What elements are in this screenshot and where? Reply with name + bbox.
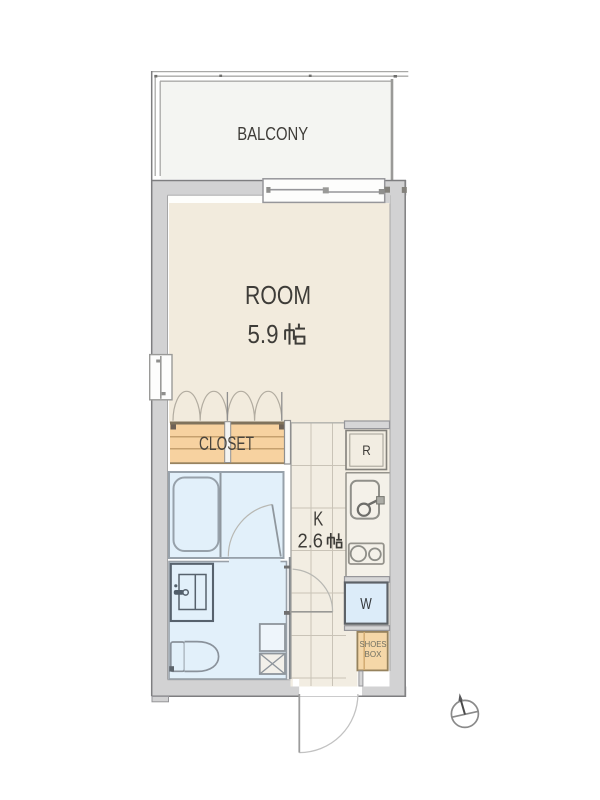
svg-text:W: W bbox=[360, 596, 372, 613]
svg-text:K: K bbox=[313, 508, 323, 531]
svg-text:5.9: 5.9 bbox=[248, 319, 279, 349]
svg-text:ROOM: ROOM bbox=[245, 280, 311, 310]
svg-text:BALCONY: BALCONY bbox=[237, 124, 308, 144]
svg-text:BOX: BOX bbox=[365, 650, 383, 659]
svg-text:SHOES: SHOES bbox=[360, 640, 387, 649]
svg-text:CLOSET: CLOSET bbox=[199, 434, 254, 455]
svg-text:R: R bbox=[362, 443, 371, 458]
svg-text:2.6: 2.6 bbox=[298, 531, 324, 553]
